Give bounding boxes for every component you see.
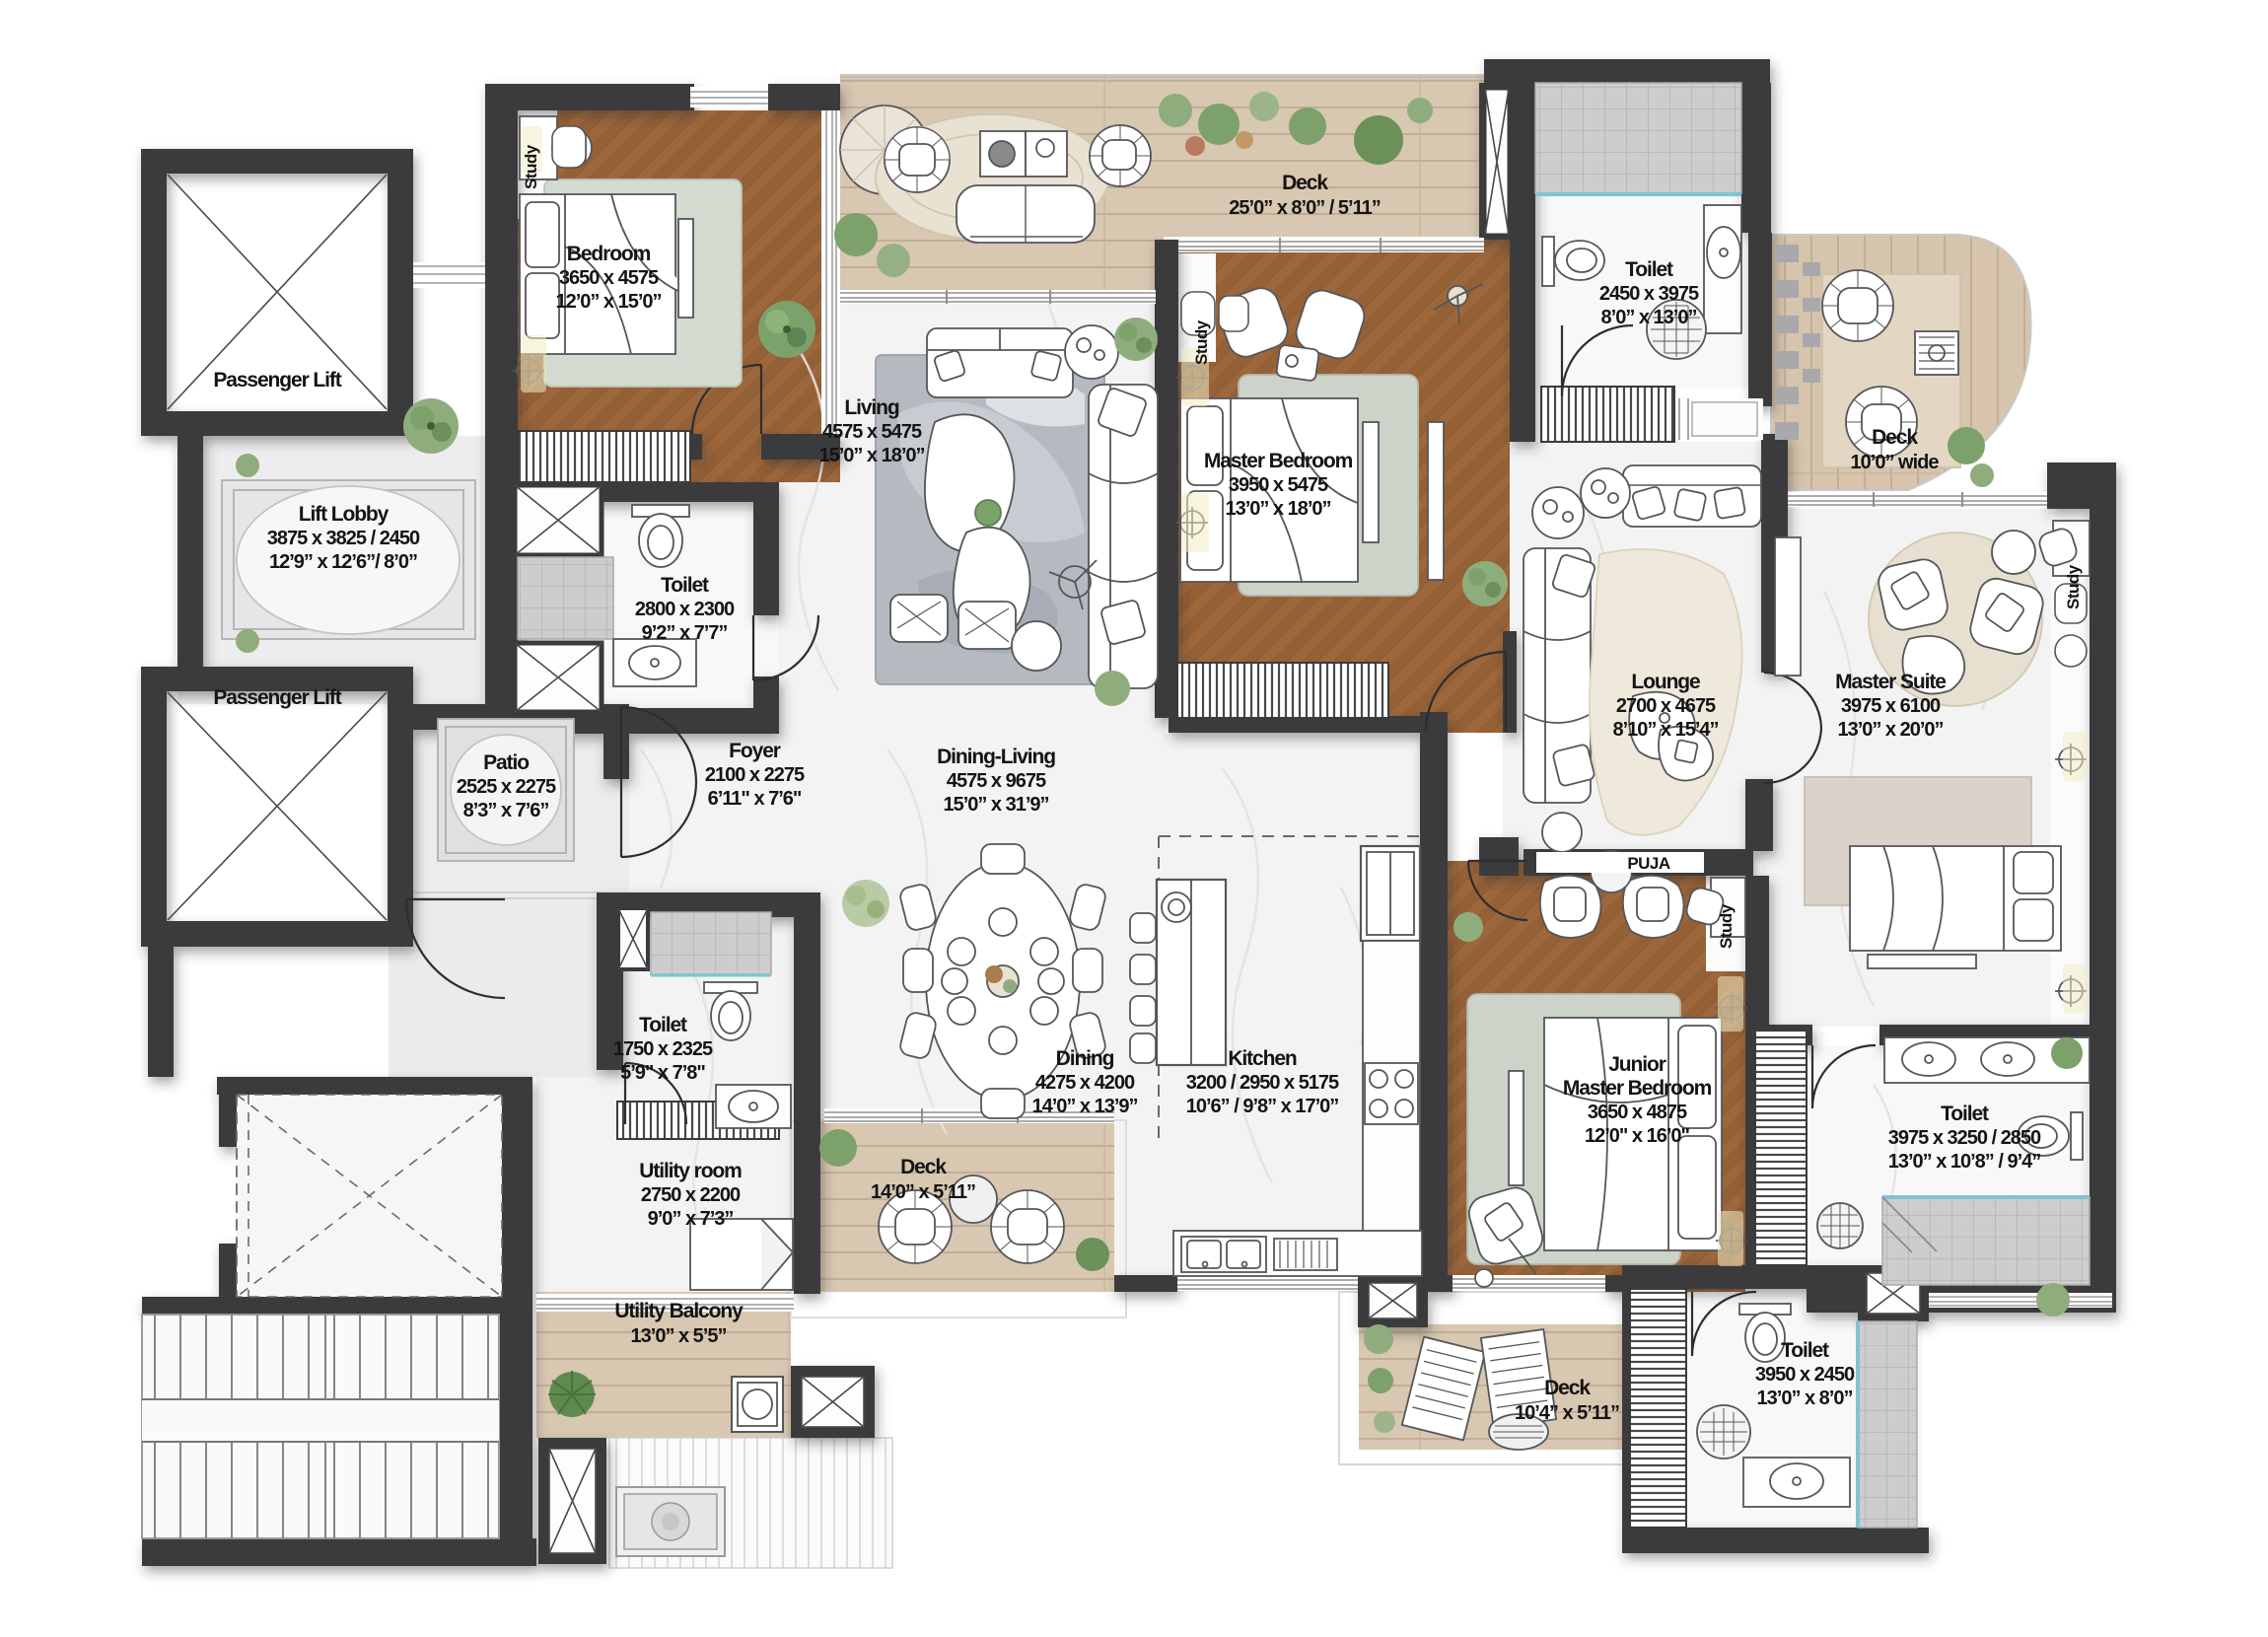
svg-text:8’3” x 7’6”: 8’3” x 7’6” <box>463 800 549 821</box>
svg-text:Toilet: Toilet <box>639 1014 687 1036</box>
svg-text:2750 x 2200: 2750 x 2200 <box>641 1184 741 1206</box>
svg-text:10’4” x 5’11”: 10’4” x 5’11” <box>1515 1402 1619 1424</box>
svg-text:Toilet: Toilet <box>1941 1103 1989 1125</box>
svg-text:Master Bedroom: Master Bedroom <box>1563 1077 1712 1100</box>
svg-text:3950 x 5475: 3950 x 5475 <box>1229 474 1328 496</box>
svg-text:2525 x 2275: 2525 x 2275 <box>457 776 556 798</box>
svg-text:10’0” wide: 10’0” wide <box>1851 452 1940 473</box>
svg-text:4275 x 4200: 4275 x 4200 <box>1035 1072 1135 1094</box>
svg-text:Study: Study <box>2064 564 2083 609</box>
svg-text:Junior: Junior <box>1608 1053 1666 1076</box>
svg-text:3650 x 4875: 3650 x 4875 <box>1588 1102 1687 1123</box>
svg-text:Dining-Living: Dining-Living <box>937 746 1055 768</box>
svg-text:3875 x 3825 / 2450: 3875 x 3825 / 2450 <box>267 528 420 549</box>
svg-text:12’0” x 15’0”: 12’0” x 15’0” <box>555 291 661 313</box>
svg-text:Deck: Deck <box>1872 426 1918 449</box>
svg-text:13’0” x 10’8” / 9’4”: 13’0” x 10’8” / 9’4” <box>1888 1151 2041 1173</box>
svg-text:Kitchen: Kitchen <box>1228 1047 1297 1070</box>
svg-text:9’0” x 7’3”: 9’0” x 7’3” <box>648 1208 734 1230</box>
svg-text:12’0" x 16’0": 12’0" x 16’0" <box>1585 1125 1690 1147</box>
svg-text:13’0” x 20’0”: 13’0” x 20’0” <box>1837 719 1943 741</box>
svg-text:2700 x 4675: 2700 x 4675 <box>1616 695 1716 717</box>
svg-text:Foyer: Foyer <box>729 740 781 762</box>
svg-text:2450 x 3975: 2450 x 3975 <box>1599 283 1699 305</box>
svg-text:3200 / 2950 x 5175: 3200 / 2950 x 5175 <box>1186 1072 1339 1094</box>
svg-text:Passenger Lift: Passenger Lift <box>213 369 341 391</box>
svg-text:Utility room: Utility room <box>639 1160 742 1182</box>
svg-text:Bedroom: Bedroom <box>567 243 651 265</box>
svg-text:13’0” x 8’0”: 13’0” x 8’0” <box>1757 1388 1853 1409</box>
svg-text:13’0” x 5’5”: 13’0” x 5’5” <box>631 1325 727 1347</box>
svg-text:4575 x 9675: 4575 x 9675 <box>947 770 1046 792</box>
svg-text:2800 x 2300: 2800 x 2300 <box>635 599 735 620</box>
svg-text:Toilet: Toilet <box>1781 1339 1829 1362</box>
svg-text:13’0” x 18’0”: 13’0” x 18’0” <box>1225 498 1330 520</box>
svg-text:3975 x 3250 / 2850: 3975 x 3250 / 2850 <box>1888 1127 2041 1149</box>
svg-text:Toilet: Toilet <box>1625 258 1673 281</box>
svg-text:Passenger Lift: Passenger Lift <box>213 686 341 709</box>
svg-text:3650 x 4575: 3650 x 4575 <box>559 267 659 289</box>
svg-text:Deck: Deck <box>1544 1377 1591 1399</box>
svg-text:10’6” / 9’8” x 17’0”: 10’6” / 9’8” x 17’0” <box>1186 1096 1339 1117</box>
svg-text:Dining: Dining <box>1056 1047 1114 1070</box>
svg-text:1750 x 2325: 1750 x 2325 <box>613 1038 713 1060</box>
svg-text:Toilet: Toilet <box>661 574 709 597</box>
svg-text:14’0” x 13’9”: 14’0” x 13’9” <box>1031 1096 1137 1117</box>
svg-text:4575 x 5475: 4575 x 5475 <box>822 421 922 443</box>
svg-text:Living: Living <box>844 396 899 419</box>
svg-text:Study: Study <box>1717 903 1736 949</box>
svg-text:14’0” x 5’11”: 14’0” x 5’11” <box>871 1181 975 1203</box>
svg-text:Master Bedroom: Master Bedroom <box>1204 450 1353 472</box>
svg-text:8’0” x 13’0”: 8’0” x 13’0” <box>1601 307 1697 328</box>
svg-text:12’9” x 12’6”/ 8’0”: 12’9” x 12’6”/ 8’0” <box>269 551 417 573</box>
svg-text:Master Suite: Master Suite <box>1835 671 1946 693</box>
svg-text:Deck: Deck <box>1282 172 1328 194</box>
svg-text:3950 x 2450: 3950 x 2450 <box>1755 1364 1855 1386</box>
svg-text:Lift Lobby: Lift Lobby <box>299 503 390 526</box>
svg-text:3975 x 6100: 3975 x 6100 <box>1841 695 1941 717</box>
svg-text:PUJA: PUJA <box>1627 854 1670 873</box>
svg-text:Study: Study <box>522 144 540 189</box>
svg-text:Utility Balcony: Utility Balcony <box>614 1300 744 1322</box>
svg-text:2100 x 2275: 2100 x 2275 <box>705 764 805 786</box>
svg-text:5’9" x 7’8": 5’9" x 7’8" <box>620 1062 705 1084</box>
svg-text:Study: Study <box>1192 320 1211 365</box>
svg-text:25’0” x 8’0” / 5’11”: 25’0” x 8’0” / 5’11” <box>1229 197 1380 219</box>
svg-text:9’2” x 7’7”: 9’2” x 7’7” <box>642 622 728 644</box>
svg-text:Lounge: Lounge <box>1631 671 1700 693</box>
svg-text:Deck: Deck <box>900 1156 947 1178</box>
svg-text:15’0” x 18’0”: 15’0” x 18’0” <box>818 445 924 466</box>
svg-text:8’10” x 15’4”: 8’10” x 15’4” <box>1612 719 1718 741</box>
svg-text:15’0” x 31’9”: 15’0” x 31’9” <box>943 794 1048 816</box>
svg-text:Patio: Patio <box>483 751 529 774</box>
svg-text:6’11" x 7’6": 6’11" x 7’6" <box>708 788 802 810</box>
